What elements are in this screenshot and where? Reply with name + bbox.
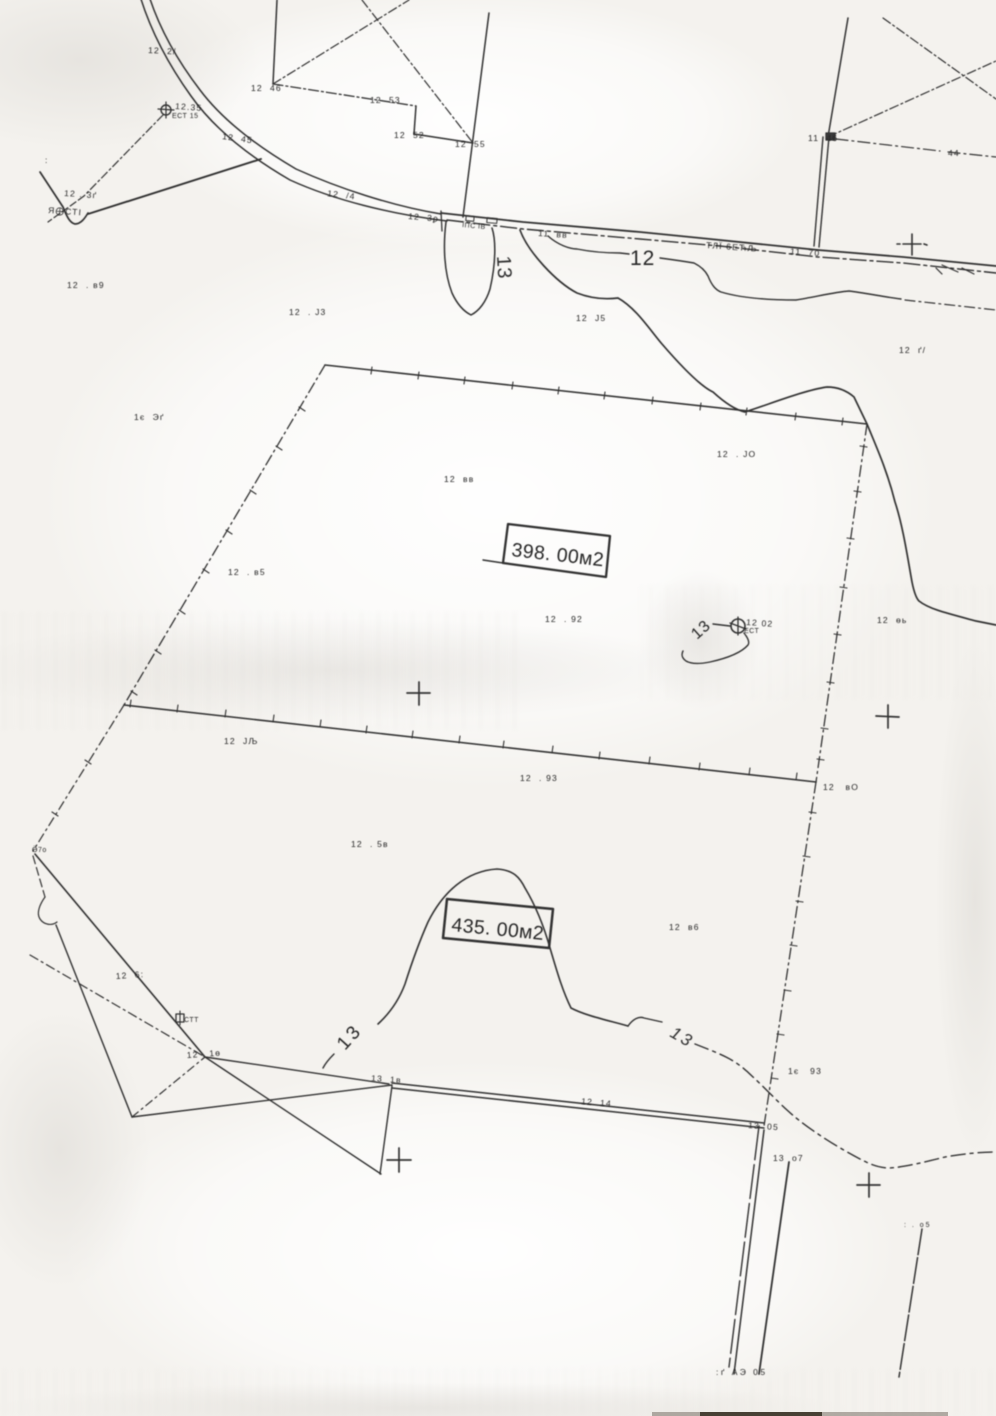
svg-text::ґ АЭ 05: :ґ АЭ 05 bbox=[716, 1367, 768, 1377]
svg-text:12 . 93: 12 . 93 bbox=[520, 773, 558, 783]
svg-text:44: 44 bbox=[948, 148, 960, 158]
svg-text:12: 12 bbox=[630, 247, 655, 270]
svg-text:1є 93: 1є 93 bbox=[788, 1066, 822, 1076]
svg-text:12 ґ/: 12 ґ/ bbox=[899, 345, 926, 355]
svg-text:1є Эґ: 1є Эґ bbox=[134, 412, 165, 422]
svg-text:12 өь: 12 өь bbox=[877, 615, 908, 625]
svg-text:12 . Ј3: 12 . Ј3 bbox=[289, 307, 326, 317]
svg-text:11 вв: 11 вв bbox=[538, 228, 568, 240]
svg-text:13 1в: 13 1в bbox=[371, 1073, 402, 1085]
svg-text:12 46: 12 46 bbox=[251, 83, 282, 93]
svg-text:СТТ: СТТ bbox=[184, 1017, 199, 1024]
svg-text:ЕСТ: ЕСТ bbox=[744, 628, 759, 635]
svg-text:13 о7: 13 о7 bbox=[773, 1153, 804, 1163]
svg-text:12.35: 12.35 bbox=[175, 101, 203, 113]
svg-text:11 46: 11 46 bbox=[808, 133, 838, 143]
svg-text:13: 13 bbox=[492, 255, 515, 279]
svg-text:12 вО: 12 вО bbox=[823, 782, 859, 792]
svg-text:12 2/: 12 2/ bbox=[148, 45, 177, 56]
svg-text:12 . 5в: 12 . 5в bbox=[351, 839, 389, 849]
svg-text:: . о5: : . о5 bbox=[904, 1222, 932, 1229]
svg-text:Ӫ7о: Ӫ7о bbox=[32, 846, 47, 854]
svg-text:12 вв: 12 вв bbox=[444, 474, 474, 484]
svg-text:12 . в5: 12 . в5 bbox=[228, 567, 266, 577]
svg-text:ЕСТ 15: ЕСТ 15 bbox=[172, 113, 199, 120]
svg-text:11 70: 11 70 bbox=[790, 246, 821, 258]
svg-text::: : bbox=[45, 155, 49, 165]
svg-text:12 в6: 12 в6 bbox=[669, 922, 700, 932]
svg-text:12 53: 12 53 bbox=[370, 95, 401, 105]
svg-text:12 . в9: 12 . в9 bbox=[67, 280, 105, 290]
svg-text:12 . ЈО: 12 . ЈО bbox=[717, 449, 756, 459]
svg-text:12 Ј5: 12 Ј5 bbox=[576, 313, 606, 323]
svg-text:12 ЈЉ: 12 ЈЉ bbox=[224, 736, 259, 746]
svg-text:12 55: 12 55 bbox=[455, 139, 486, 149]
svg-text:12 6:: 12 6: bbox=[115, 969, 144, 981]
svg-text:12 52: 12 52 bbox=[394, 130, 425, 140]
svg-text:12 . 92: 12 . 92 bbox=[545, 614, 583, 624]
